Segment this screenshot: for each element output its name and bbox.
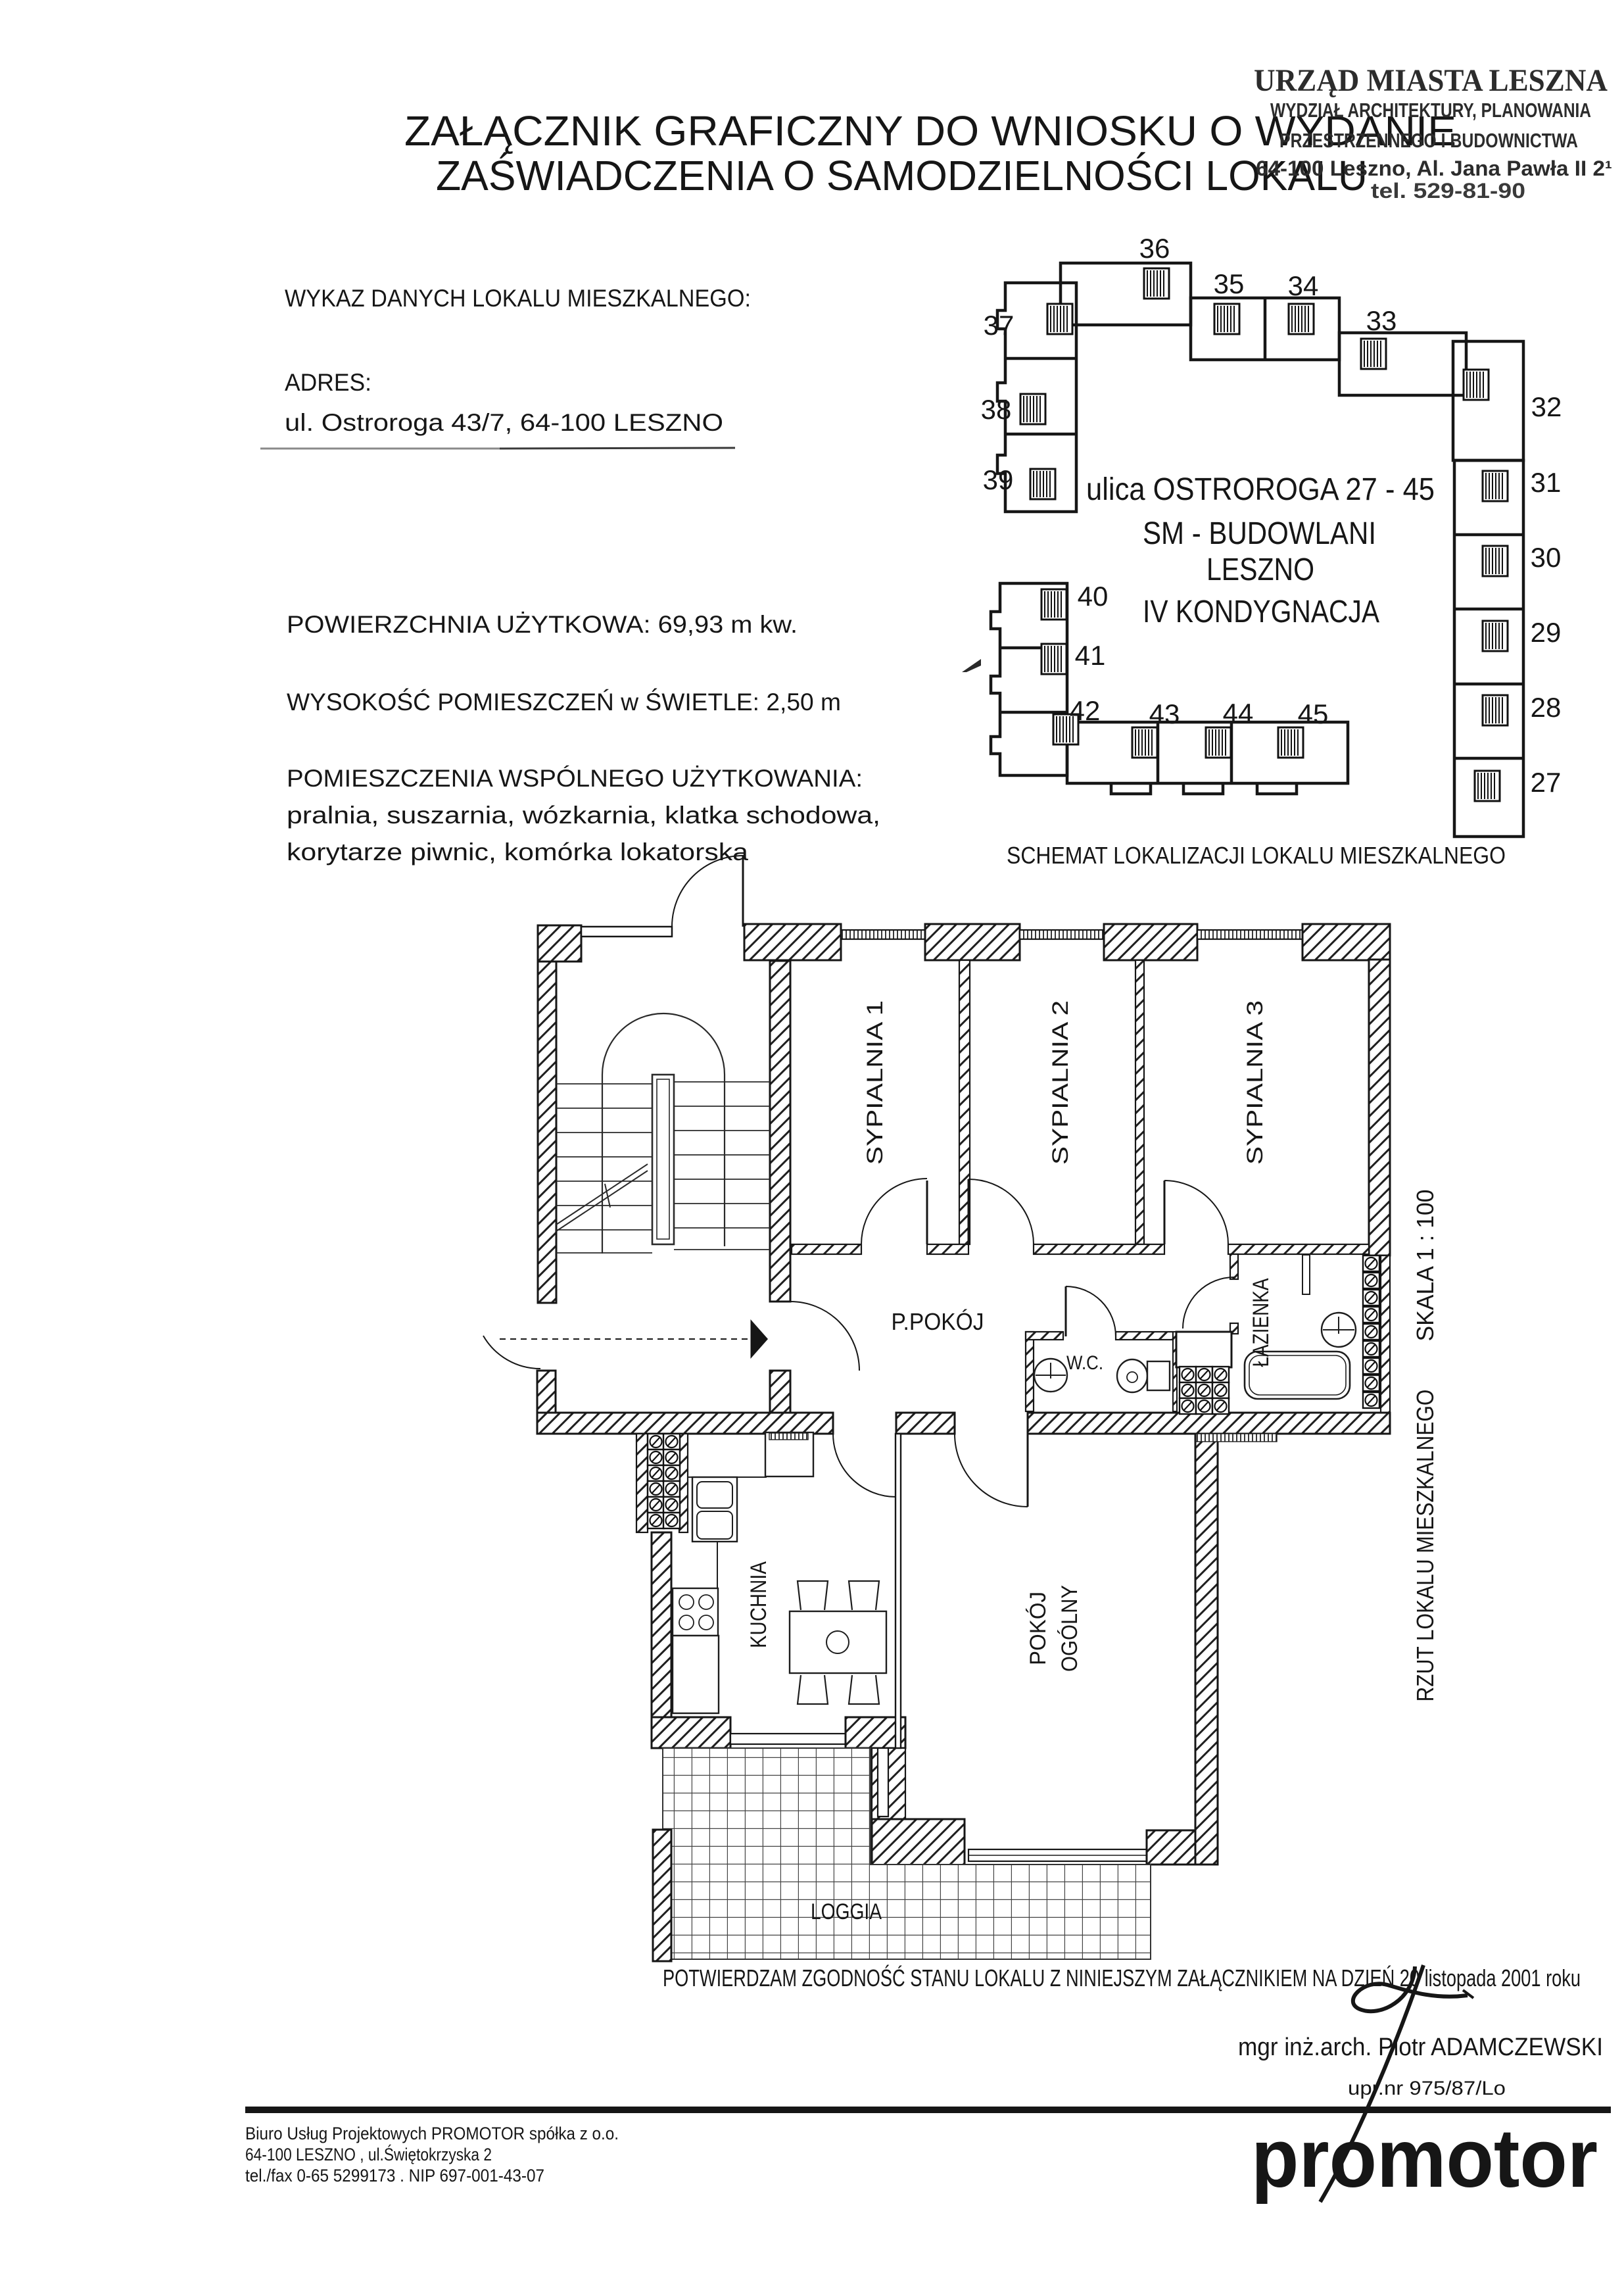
svg-text:35: 35 <box>1214 268 1245 299</box>
svg-text:27: 27 <box>1531 767 1562 798</box>
svg-text:tel./fax 0-65 5299173 . NIP 6: tel./fax 0-65 5299173 . NIP 697-001-43-0… <box>245 2166 544 2185</box>
svg-text:33: 33 <box>1366 305 1397 336</box>
svg-text:WYDZIAŁ ARCHITEKTURY, PLANOWAN: WYDZIAŁ ARCHITEKTURY, PLANOWANIA <box>1270 99 1591 122</box>
svg-text:P.POKÓJ: P.POKÓJ <box>892 1308 984 1335</box>
svg-text:ul. Ostroroga 43/7, 64-100 LE: ul. Ostroroga 43/7, 64-100 LESZNO <box>285 409 723 436</box>
svg-text:39: 39 <box>983 464 1014 495</box>
svg-text:ulica OSTROROGA 27 - 45: ulica OSTROROGA 27 - 45 <box>1086 472 1435 507</box>
svg-text:LOGGIA: LOGGIA <box>811 1899 882 1924</box>
svg-text:KUCHNIA: KUCHNIA <box>746 1561 771 1648</box>
svg-text:mgr inż.arch. Piotr ADAMCZEWSK: mgr inż.arch. Piotr ADAMCZEWSKI <box>1238 2034 1603 2061</box>
svg-text:POWIERZCHNIA UŻYTKOWA: 69,93: POWIERZCHNIA UŻYTKOWA: 69,93 m kw. <box>287 611 798 638</box>
svg-text:SYPIALNIA 2: SYPIALNIA 2 <box>1048 1000 1073 1165</box>
svg-text:URZĄD MIASTA LESZNA: URZĄD MIASTA LESZNA <box>1254 63 1608 98</box>
svg-text:ŁAZIENKA: ŁAZIENKA <box>1249 1278 1274 1367</box>
svg-text:31: 31 <box>1531 467 1562 498</box>
svg-text:43: 43 <box>1149 698 1180 729</box>
svg-text:37: 37 <box>984 310 1015 341</box>
svg-text:40: 40 <box>1078 581 1109 612</box>
svg-text:W.C.: W.C. <box>1066 1352 1103 1374</box>
svg-text:tel. 529-81-90: tel. 529-81-90 <box>1371 179 1525 203</box>
svg-text:44: 44 <box>1223 698 1254 729</box>
svg-text:OGÓLNY: OGÓLNY <box>1057 1585 1082 1672</box>
svg-text:WYKAZ DANYCH LOKALU MIESZKALNE: WYKAZ DANYCH LOKALU MIESZKALNEGO: <box>285 285 751 312</box>
svg-text:30: 30 <box>1531 542 1562 573</box>
svg-text:POTWIERDZAM ZGODNOŚĆ STANU LOK: POTWIERDZAM ZGODNOŚĆ STANU LOKALU Z NINI… <box>663 1964 1581 1991</box>
svg-text:WYSOKOŚĆ POMIESZCZEŃ w ŚWIETLE: WYSOKOŚĆ POMIESZCZEŃ w ŚWIETLE: 2,50 m <box>287 688 841 716</box>
svg-text:POKÓJ: POKÓJ <box>1026 1592 1051 1665</box>
svg-text:42: 42 <box>1070 695 1101 726</box>
svg-text:POMIESZCZENIA WSPÓLNEGO UŻYTKO: POMIESZCZENIA WSPÓLNEGO UŻYTKOWANIA: <box>287 765 863 792</box>
svg-text:SCHEMAT LOKALIZACJI LOKALU MIE: SCHEMAT LOKALIZACJI LOKALU MIESZKALNEGO <box>1007 842 1506 869</box>
svg-text:41: 41 <box>1075 640 1106 671</box>
svg-text:45: 45 <box>1298 698 1329 729</box>
svg-text:PRZESTRZENNEGO I BUDOWNICTWA: PRZESTRZENNEGO I BUDOWNICTWA <box>1279 129 1578 152</box>
svg-text:LESZNO: LESZNO <box>1206 552 1314 587</box>
svg-text:64-100 LESZNO , ul.Świętokrzys: 64-100 LESZNO , ul.Świętokrzyska 2 <box>245 2143 492 2164</box>
svg-text:IV KONDYGNACJA: IV KONDYGNACJA <box>1143 595 1379 629</box>
svg-text:ADRES:: ADRES: <box>285 369 371 396</box>
svg-text:pralnia, suszarnia, wózkarnia,: pralnia, suszarnia, wózkarnia, klatka sc… <box>287 802 880 829</box>
svg-text:28: 28 <box>1531 692 1562 723</box>
svg-text:RZUT LOKALU MIESZKALNEGO: RZUT LOKALU MIESZKALNEGO <box>1412 1390 1439 1702</box>
svg-text:32: 32 <box>1531 391 1562 422</box>
svg-text:64-100 Leszno, Al. Jana Pawła: 64-100 Leszno, Al. Jana Pawła II 2¹ <box>1256 157 1612 180</box>
svg-text:29: 29 <box>1531 617 1562 648</box>
svg-text:34: 34 <box>1288 270 1319 301</box>
svg-text:SKALA 1 : 100: SKALA 1 : 100 <box>1412 1190 1439 1342</box>
svg-text:SYPIALNIA 3: SYPIALNIA 3 <box>1243 1000 1268 1165</box>
svg-text:promotor: promotor <box>1251 2112 1598 2205</box>
svg-text:36: 36 <box>1139 233 1170 264</box>
svg-text:SYPIALNIA 1: SYPIALNIA 1 <box>863 1000 888 1165</box>
svg-text:SM - BUDOWLANI: SM - BUDOWLANI <box>1143 516 1376 551</box>
svg-text:korytarze piwnic, komórka loka: korytarze piwnic, komórka lokatorska <box>287 839 748 866</box>
svg-text:38: 38 <box>981 394 1012 425</box>
svg-text:ZAŚWIADCZENIA O SAMODZIELNOŚCI: ZAŚWIADCZENIA O SAMODZIELNOŚCI LOKALU <box>436 151 1368 199</box>
svg-text:Biuro Usług Projektowych PROMO: Biuro Usług Projektowych PROMOTOR spółka… <box>245 2124 619 2143</box>
